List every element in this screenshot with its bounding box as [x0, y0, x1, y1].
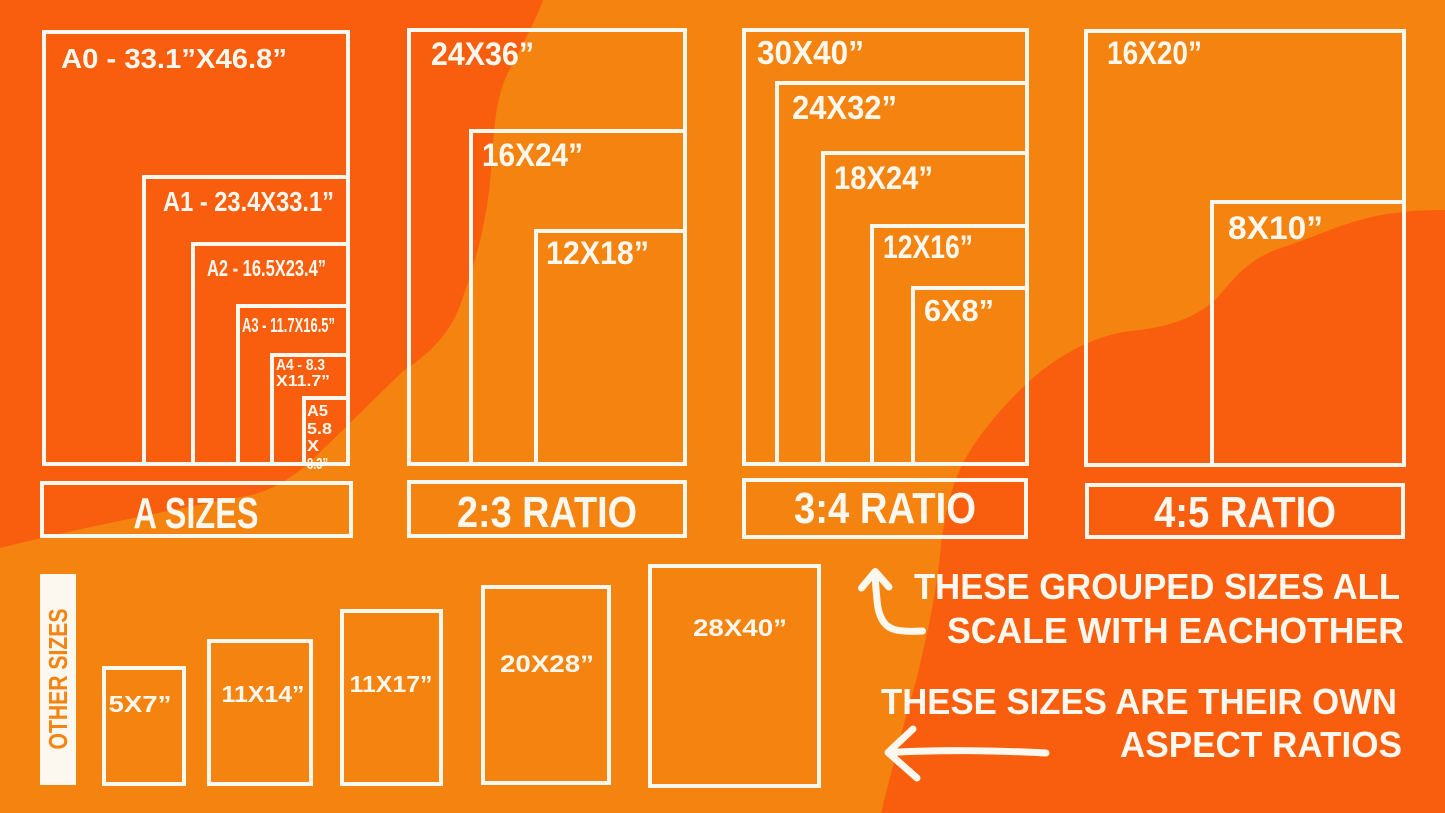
- svg-text:A2 - 16.5X23.4”: A2 - 16.5X23.4”: [207, 255, 326, 281]
- svg-text:24X36”: 24X36”: [431, 36, 534, 72]
- svg-text:16X24”: 16X24”: [482, 137, 583, 173]
- svg-text:11X17”: 11X17”: [350, 671, 433, 697]
- svg-text:ASPECT RATIOS: ASPECT RATIOS: [1120, 724, 1402, 765]
- svg-text:12X18”: 12X18”: [546, 235, 649, 271]
- svg-text:A5: A5: [307, 403, 328, 420]
- svg-text:16X20”: 16X20”: [1107, 35, 1202, 71]
- svg-text:20X28”: 20X28”: [500, 651, 594, 678]
- svg-text:28X40”: 28X40”: [693, 615, 787, 642]
- svg-text:18X24”: 18X24”: [834, 160, 933, 196]
- svg-text:OTHER SIZES: OTHER SIZES: [43, 609, 73, 750]
- svg-text:5.8: 5.8: [307, 421, 332, 438]
- svg-text:A3 - 11.7X16.5”: A3 - 11.7X16.5”: [242, 315, 335, 337]
- svg-text:6X8”: 6X8”: [924, 293, 994, 328]
- svg-text:24X32”: 24X32”: [792, 89, 897, 126]
- svg-text:A0 - 33.1”X46.8”: A0 - 33.1”X46.8”: [61, 43, 287, 74]
- svg-text:X: X: [307, 438, 319, 455]
- svg-text:30X40”: 30X40”: [757, 34, 864, 71]
- svg-text:11X14”: 11X14”: [222, 681, 305, 707]
- svg-text:THESE GROUPED SIZES ALL: THESE GROUPED SIZES ALL: [914, 566, 1400, 607]
- svg-text:12X16”: 12X16”: [883, 229, 973, 265]
- svg-text:A1 - 23.4X33.1”: A1 - 23.4X33.1”: [163, 186, 334, 217]
- svg-text:5X7”: 5X7”: [109, 691, 172, 717]
- svg-text:THESE SIZES ARE THEIR OWN: THESE SIZES ARE THEIR OWN: [881, 681, 1397, 722]
- svg-text:X11.7”: X11.7”: [276, 373, 330, 390]
- svg-text:3:4 RATIO: 3:4 RATIO: [794, 484, 976, 533]
- svg-text:A SIZES: A SIZES: [134, 489, 259, 538]
- svg-text:8.3”: 8.3”: [307, 456, 328, 473]
- svg-text:4:5 RATIO: 4:5 RATIO: [1154, 488, 1336, 537]
- svg-text:2:3 RATIO: 2:3 RATIO: [457, 488, 637, 537]
- svg-text:8X10”: 8X10”: [1228, 210, 1323, 246]
- svg-text:SCALE WITH EACHOTHER: SCALE WITH EACHOTHER: [947, 610, 1404, 651]
- svg-text:A4 - 8.3: A4 - 8.3: [276, 357, 325, 374]
